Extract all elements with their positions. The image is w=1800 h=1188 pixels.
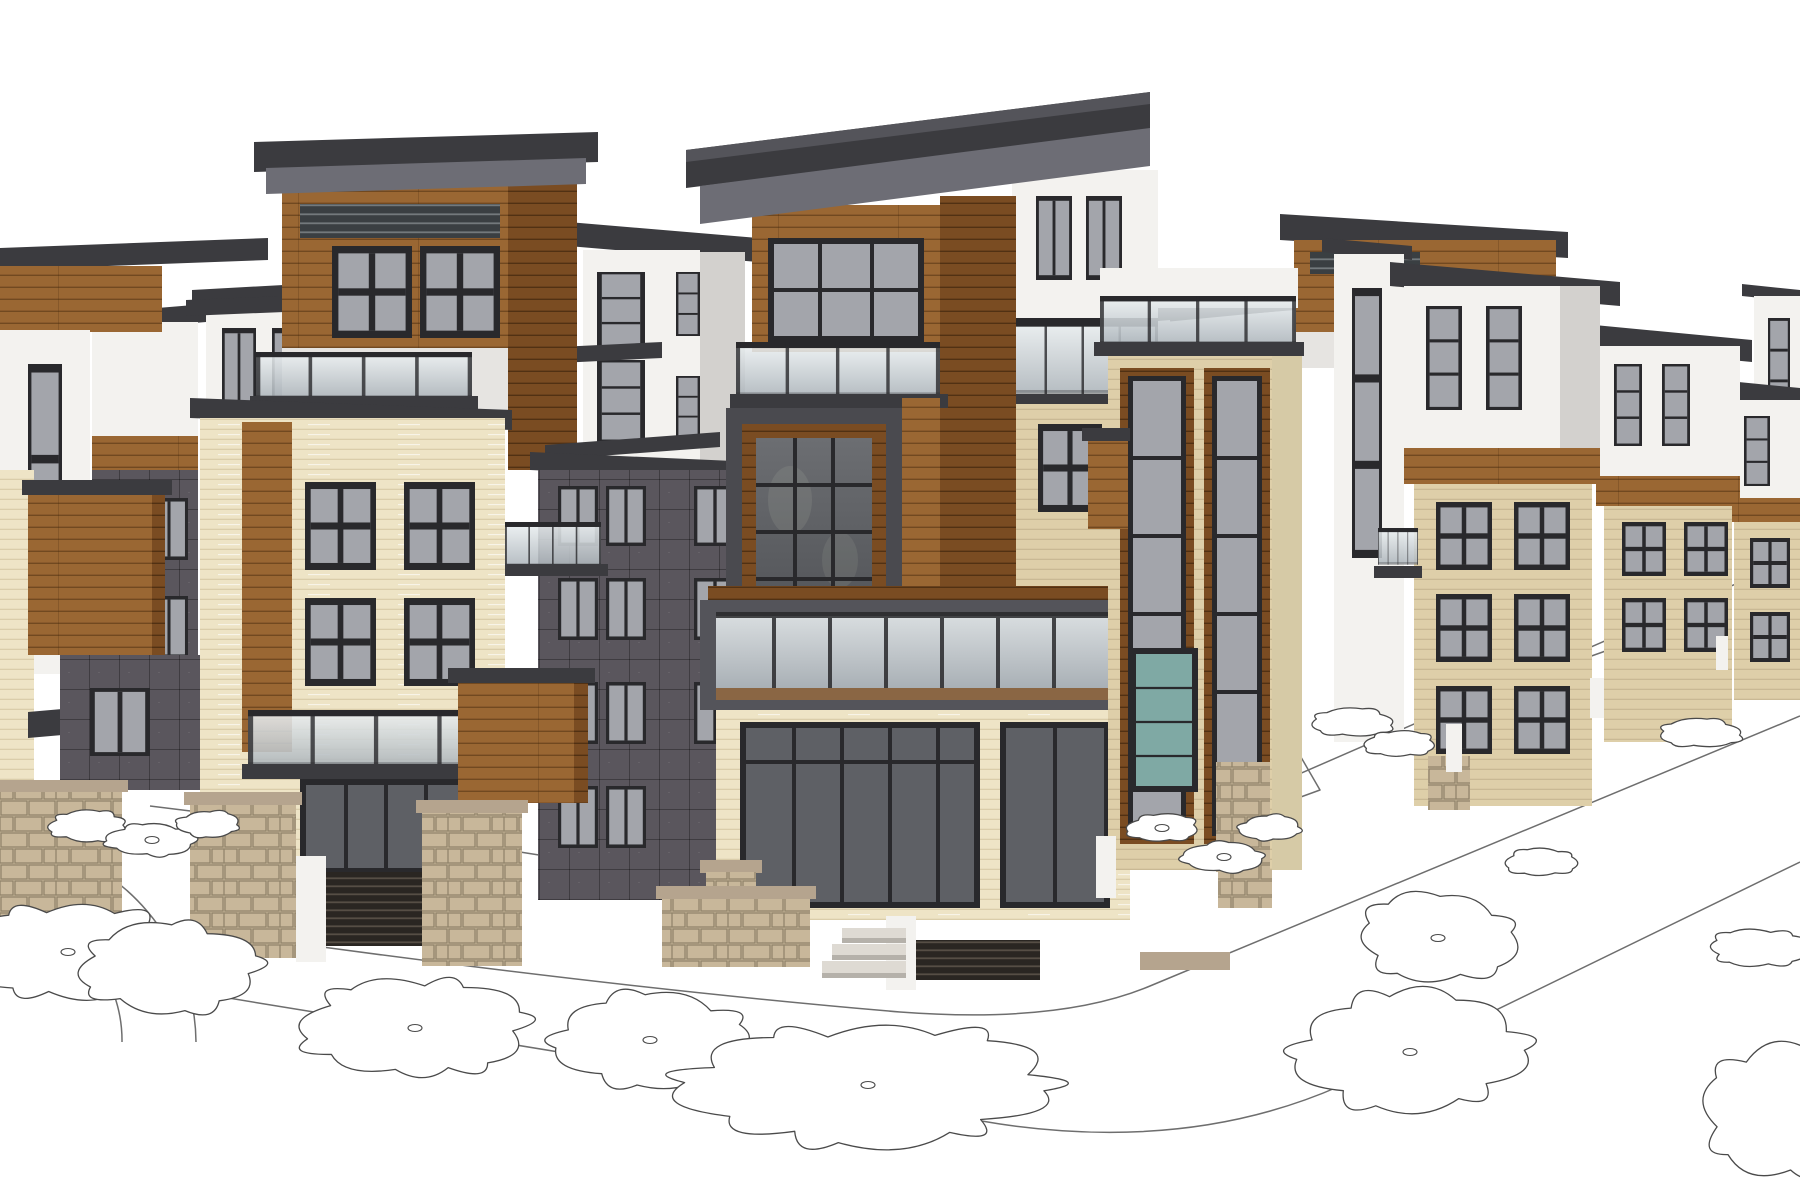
- roof-slab: [1094, 342, 1304, 356]
- tree-trunk-dot: [1431, 935, 1445, 942]
- side-face: [1560, 286, 1600, 448]
- plan-tree: [1364, 731, 1434, 757]
- wood-accent-box: [1088, 441, 1128, 529]
- tree-trunk-dot: [145, 837, 159, 844]
- tall-window: [1352, 288, 1382, 558]
- glass-balcony-rail: [256, 352, 472, 398]
- window: [1614, 364, 1642, 446]
- wood-box-cap: [448, 668, 595, 683]
- glass-balcony-rail: [505, 522, 601, 566]
- roof-deck-rail: [1100, 296, 1296, 344]
- stone-cap: [0, 780, 128, 792]
- tree-trunk-dot: [1403, 1049, 1417, 1056]
- balcony-slab: [1374, 566, 1422, 578]
- wood-band: [1596, 476, 1740, 506]
- tree-trunk-dot: [1217, 854, 1231, 861]
- white-pier: [1446, 724, 1462, 772]
- balcony-slab: [500, 564, 608, 576]
- window: [1744, 416, 1770, 486]
- wood-slat-fence: [916, 940, 1040, 980]
- wood-band: [92, 436, 198, 470]
- wood-box-shade: [574, 683, 588, 803]
- stone-cap: [700, 860, 762, 873]
- window: [1750, 612, 1790, 662]
- side-face: [1272, 356, 1302, 870]
- corner-window-band: [768, 238, 924, 342]
- window: [1662, 364, 1690, 446]
- teal-entry-glass: [1130, 648, 1198, 792]
- balcony-cap: [22, 480, 172, 495]
- bench-block: [1140, 952, 1230, 970]
- plan-tree: [1505, 848, 1578, 875]
- tree-trunk-dot: [861, 1082, 875, 1089]
- glass-balcony-rail: [1378, 528, 1418, 565]
- plan-tree: [1710, 929, 1800, 966]
- window: [1426, 306, 1462, 410]
- wood-box-cap: [1082, 428, 1130, 441]
- window: [1750, 538, 1790, 588]
- left-wood-balcony-box: [28, 495, 165, 655]
- glass-balcony-rail: [736, 342, 940, 396]
- white-pier: [1096, 836, 1116, 898]
- wood-band: [0, 266, 162, 332]
- tree-trunk-dot: [1155, 825, 1169, 832]
- architectural-rendering: [0, 0, 1800, 1188]
- stone-privacy-wall: [662, 899, 810, 967]
- wood-band: [1404, 448, 1600, 484]
- tree-trunk-dot: [61, 949, 75, 956]
- wood-box-shade: [152, 495, 165, 655]
- wood-accent-strip: [242, 422, 292, 752]
- window: [90, 688, 150, 756]
- tree-trunk-dot: [408, 1025, 422, 1032]
- white-facade: [92, 322, 198, 436]
- right-mid-tower: [1082, 268, 1304, 898]
- main-balcony-band: [700, 586, 1130, 710]
- stone-cap: [656, 886, 816, 899]
- tree-trunk-dot: [643, 1037, 657, 1044]
- wood-side-face: [508, 180, 577, 470]
- white-pier: [1590, 678, 1604, 718]
- window: [1486, 306, 1522, 410]
- render-canvas: [0, 0, 1800, 1188]
- clerestory-louver: [300, 204, 500, 238]
- white-pier: [1716, 636, 1728, 670]
- wood-balcony-box: [458, 683, 588, 803]
